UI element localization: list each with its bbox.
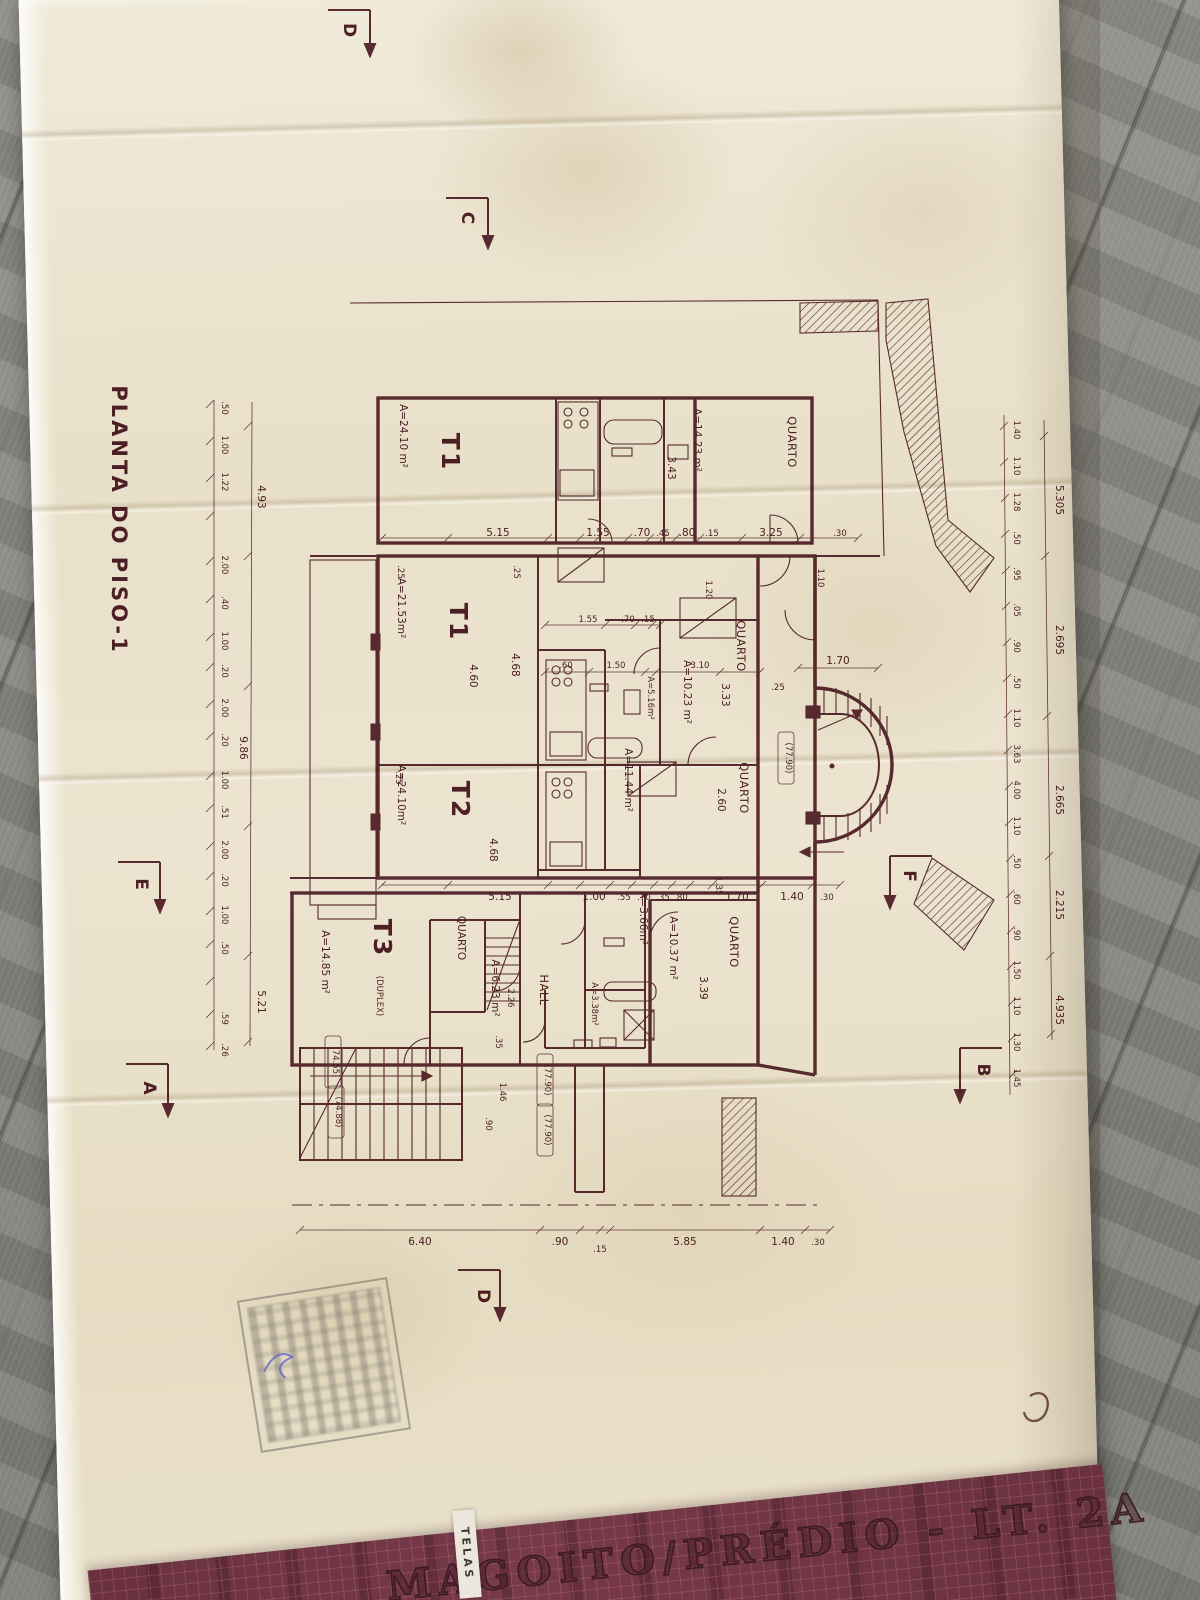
plan-title: PLANTA DO PISO-1 bbox=[107, 385, 131, 654]
section-letter-d: D bbox=[339, 23, 359, 37]
room-label-quarto5: QUARTO bbox=[727, 916, 741, 968]
dim: 1.50 bbox=[607, 661, 626, 671]
dim: 5.15 bbox=[486, 527, 509, 539]
dim: .60 bbox=[559, 661, 573, 671]
dim: 2.665 bbox=[1053, 785, 1065, 815]
section-letter-d2: D bbox=[473, 1289, 493, 1303]
dim: .20 bbox=[219, 873, 229, 887]
dim: .70 bbox=[621, 615, 635, 625]
dim: .35 bbox=[493, 1035, 503, 1049]
dim: .50 bbox=[1011, 675, 1021, 689]
dim: 2.695 bbox=[1053, 625, 1065, 655]
dim: 1.40 bbox=[771, 1236, 794, 1248]
dim: 4.00 bbox=[1011, 781, 1021, 800]
dim: 6.40 bbox=[408, 1236, 431, 1248]
dim: 1.20 bbox=[703, 581, 713, 600]
area-label-quarto5: A=10.37 m² bbox=[667, 916, 679, 980]
section-letter-e: E bbox=[131, 878, 151, 890]
dim: .45 bbox=[656, 529, 670, 539]
dim: .70 bbox=[634, 527, 651, 539]
elevation-tag: (74.55) bbox=[330, 1047, 340, 1078]
dim: .50 bbox=[219, 401, 229, 415]
dim: 1.10 bbox=[1011, 997, 1021, 1016]
section-letter-b: B bbox=[973, 1064, 993, 1077]
dim: 1.00 bbox=[219, 632, 229, 651]
dim: .20 bbox=[219, 733, 229, 747]
approval-stamp bbox=[237, 1277, 411, 1453]
dim: 1.22 bbox=[219, 473, 229, 492]
dim: .95 bbox=[1011, 567, 1021, 581]
dim: .50 bbox=[219, 941, 229, 955]
dim: .25 bbox=[771, 683, 785, 693]
dim: 1.40 bbox=[780, 891, 803, 903]
dim: 1.45 bbox=[1011, 1069, 1021, 1088]
dim: .70 bbox=[637, 893, 651, 903]
dim: 3.25 bbox=[759, 527, 782, 539]
dim: 3.63 bbox=[1011, 745, 1021, 764]
floor-plan-drawing: PLANTA DO PISO-1 A=24.10 m² T1 A=14.23 m… bbox=[0, 0, 1200, 1600]
dim: 4.935 bbox=[1053, 995, 1065, 1025]
dim: 3.39 bbox=[697, 976, 709, 999]
area-label-quarto4: A=6.23 m² bbox=[489, 959, 501, 1016]
dim: 4.60 bbox=[467, 664, 479, 687]
section-letter-c: C bbox=[457, 212, 477, 224]
section-letter-f: F bbox=[899, 870, 919, 882]
dim: .60 bbox=[1011, 891, 1021, 905]
dim: .50 bbox=[1011, 531, 1021, 545]
dim: .15 bbox=[593, 1245, 607, 1255]
dim: 1.00 bbox=[582, 891, 605, 903]
dim: 1.46 bbox=[497, 1083, 507, 1102]
blueprint-photo: PLANTA DO PISO-1 A=24.10 m² T1 A=14.23 m… bbox=[0, 0, 1200, 1600]
dim: .59 bbox=[219, 1011, 229, 1025]
area-label-sala: A=11.44 m² bbox=[622, 748, 634, 812]
dim: .50 bbox=[1011, 855, 1021, 869]
dim: 2.60 bbox=[715, 788, 727, 811]
section-letter-a: A bbox=[139, 1081, 159, 1095]
dim: .51 bbox=[219, 805, 229, 819]
dim: .55 bbox=[617, 893, 631, 903]
dim: .35 bbox=[656, 893, 670, 903]
dim: 1.35 bbox=[713, 877, 723, 896]
dim: 4.68 bbox=[487, 838, 499, 861]
dim: 2.00 bbox=[219, 841, 229, 860]
dim: .05 bbox=[1011, 603, 1021, 617]
unit-label-t3: T3 bbox=[368, 919, 397, 957]
dim: 1.00 bbox=[219, 436, 229, 455]
dim: .30 bbox=[811, 1238, 825, 1248]
dim: 2.26 bbox=[505, 989, 515, 1008]
dim: 3.43 bbox=[665, 456, 677, 479]
dim: 1.50 bbox=[1011, 961, 1021, 980]
dim: 1.30 bbox=[1011, 1033, 1021, 1052]
elevation-tag: (77.90) bbox=[542, 1115, 552, 1146]
dim: .90 bbox=[1011, 639, 1021, 653]
dim: 1.28 bbox=[1011, 493, 1021, 512]
dim: 3.33 bbox=[719, 683, 731, 706]
dim: 1.55 bbox=[586, 527, 609, 539]
dim: .26 bbox=[219, 1043, 229, 1057]
area-label-t1b: A=21.53m² bbox=[395, 578, 407, 638]
area-label-bath-t3b: A=3.38m² bbox=[589, 982, 599, 1026]
dim: 2.215 bbox=[1053, 890, 1065, 920]
dim: 4.93 bbox=[255, 485, 267, 508]
dim: 2.00 bbox=[219, 699, 229, 718]
dim: .90 bbox=[483, 1117, 493, 1131]
elevation-tag: (74.88) bbox=[333, 1097, 343, 1128]
dim: 1.10 bbox=[815, 569, 825, 588]
dim: .25 bbox=[395, 565, 405, 579]
dim: 1.40 bbox=[1011, 421, 1021, 440]
stamp-check-mark bbox=[254, 1333, 321, 1392]
unit-label-t2: T2 bbox=[446, 781, 475, 819]
dim: .90 bbox=[1011, 927, 1021, 941]
dim: .30 bbox=[820, 893, 834, 903]
dim: 1.10 bbox=[1011, 457, 1021, 476]
dim: 4.68 bbox=[509, 653, 521, 676]
dim: 5.15 bbox=[488, 891, 511, 903]
dim: 5.85 bbox=[673, 1236, 696, 1248]
room-label-hall: HALL bbox=[537, 974, 551, 1005]
dim: 1.55 bbox=[579, 615, 598, 625]
dim: .40 bbox=[219, 596, 229, 610]
elevation-tag: (77.90) bbox=[542, 1065, 552, 1096]
unit-sublabel-t3: (DUPLEX) bbox=[374, 976, 384, 1016]
dim: .80 bbox=[674, 893, 688, 903]
dim: 1.10 bbox=[1011, 817, 1021, 836]
balcony bbox=[310, 560, 380, 919]
room-label-quarto2: QUARTO bbox=[734, 620, 748, 672]
room-label-quarto4: QUARTO bbox=[455, 916, 467, 960]
area-label-t3: A=14.85 m² bbox=[319, 930, 331, 994]
room-label-quarto3: QUARTO bbox=[737, 762, 751, 814]
dim: 1.00 bbox=[219, 906, 229, 925]
area-label-bath-t1: A=5.16m² bbox=[645, 676, 655, 720]
dim: 9.86 bbox=[237, 736, 249, 760]
unit-label-t1a: T1 bbox=[436, 433, 465, 471]
elevation-tag: (77.90) bbox=[783, 743, 793, 774]
area-label-t1a: A=24.10 m² bbox=[397, 404, 409, 468]
partition-walls bbox=[430, 398, 758, 1065]
area-label-quarto1: A=14.23 m² bbox=[691, 408, 703, 472]
dim: 1.70 bbox=[725, 891, 748, 903]
dim: .15 bbox=[705, 529, 719, 539]
dim: .25 bbox=[393, 771, 403, 785]
dim: .90 bbox=[552, 1236, 569, 1248]
room-label-quarto1: QUARTO bbox=[785, 416, 799, 468]
dim: 5.21 bbox=[255, 990, 267, 1013]
dim: 5.305 bbox=[1053, 485, 1065, 515]
dim: .30 bbox=[833, 529, 847, 539]
dim: .25 bbox=[511, 565, 521, 579]
dim: 1.00 bbox=[219, 771, 229, 790]
dim: 3.10 bbox=[691, 661, 710, 671]
dim: .80 bbox=[679, 527, 696, 539]
dim: .20 bbox=[219, 664, 229, 678]
dim: 2.00 bbox=[219, 556, 229, 575]
dim: .15 bbox=[641, 615, 655, 625]
dim: 1.10 bbox=[1011, 709, 1021, 728]
unit-label-t1b: T1 bbox=[444, 603, 473, 641]
telas-label: TELAS bbox=[458, 1527, 476, 1581]
fixtures bbox=[546, 402, 688, 1048]
dim: 1.70 bbox=[826, 655, 849, 667]
pen-mark bbox=[1024, 1393, 1048, 1421]
